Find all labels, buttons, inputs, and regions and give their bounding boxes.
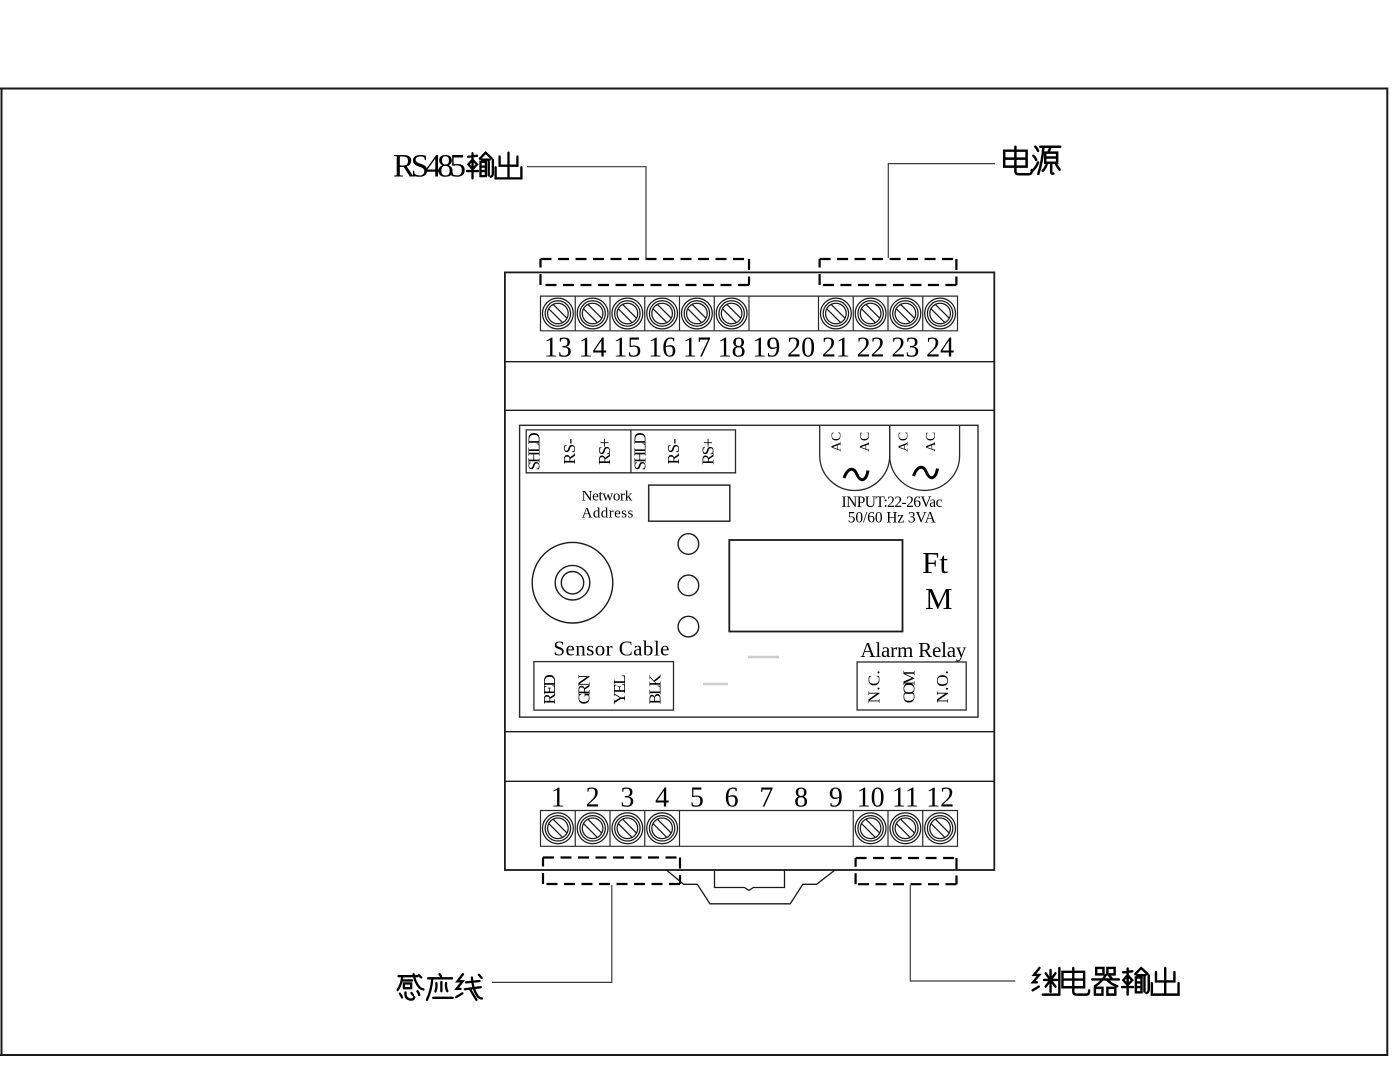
svg-text:19: 19 bbox=[752, 333, 780, 364]
svg-text:SHLD: SHLD bbox=[525, 432, 544, 470]
svg-text:SHLD: SHLD bbox=[630, 432, 649, 470]
svg-text:11: 11 bbox=[892, 783, 919, 814]
svg-text:RS+: RS+ bbox=[699, 438, 718, 465]
svg-text:5: 5 bbox=[690, 783, 704, 814]
svg-text:50/60 Hz 3VA: 50/60 Hz 3VA bbox=[848, 510, 937, 527]
svg-text:2: 2 bbox=[586, 783, 600, 814]
svg-text:RED: RED bbox=[540, 674, 559, 704]
svg-text:6: 6 bbox=[725, 783, 739, 814]
svg-text:N.C.: N.C. bbox=[865, 670, 884, 703]
svg-text:17: 17 bbox=[683, 333, 711, 364]
svg-text:Ft: Ft bbox=[922, 545, 948, 580]
svg-text:AC: AC bbox=[829, 432, 844, 452]
svg-text:YEL: YEL bbox=[610, 674, 629, 704]
svg-text:RS+: RS+ bbox=[595, 438, 614, 465]
svg-text:13: 13 bbox=[544, 333, 572, 364]
svg-text:20: 20 bbox=[787, 333, 815, 364]
svg-text:Network: Network bbox=[582, 488, 633, 504]
svg-text:22: 22 bbox=[857, 333, 885, 364]
svg-text:7: 7 bbox=[759, 783, 773, 814]
svg-text:AC: AC bbox=[858, 432, 873, 452]
svg-text:Sensor Cable: Sensor Cable bbox=[553, 637, 669, 661]
svg-text:8: 8 bbox=[794, 783, 808, 814]
svg-text:INPUT:22-26Vac: INPUT:22-26Vac bbox=[842, 494, 943, 511]
svg-text:Address: Address bbox=[582, 506, 634, 522]
svg-text:10: 10 bbox=[857, 783, 885, 814]
svg-text:M: M bbox=[925, 581, 953, 616]
svg-text:AC: AC bbox=[896, 432, 911, 452]
svg-text:15: 15 bbox=[613, 333, 641, 364]
svg-text:RS-: RS- bbox=[560, 438, 579, 464]
svg-text:18: 18 bbox=[718, 333, 746, 364]
svg-text:N.O.: N.O. bbox=[933, 670, 952, 703]
svg-text:4: 4 bbox=[655, 783, 669, 814]
svg-text:21: 21 bbox=[822, 333, 850, 364]
svg-text:12: 12 bbox=[926, 783, 954, 814]
svg-text:RS-: RS- bbox=[664, 438, 683, 464]
svg-text:16: 16 bbox=[648, 333, 676, 364]
svg-text:3: 3 bbox=[620, 783, 634, 814]
svg-text:AC: AC bbox=[924, 432, 939, 452]
svg-text:1: 1 bbox=[551, 783, 565, 814]
svg-text:RS485: RS485 bbox=[393, 149, 466, 185]
svg-text:24: 24 bbox=[926, 333, 954, 364]
svg-text:COM: COM bbox=[899, 670, 918, 703]
svg-text:9: 9 bbox=[829, 783, 843, 814]
svg-text:GRN: GRN bbox=[575, 674, 594, 704]
svg-text:BLK: BLK bbox=[646, 674, 665, 705]
svg-text:14: 14 bbox=[579, 333, 607, 364]
svg-text:Alarm Relay: Alarm Relay bbox=[860, 638, 967, 662]
svg-text:23: 23 bbox=[891, 333, 919, 364]
